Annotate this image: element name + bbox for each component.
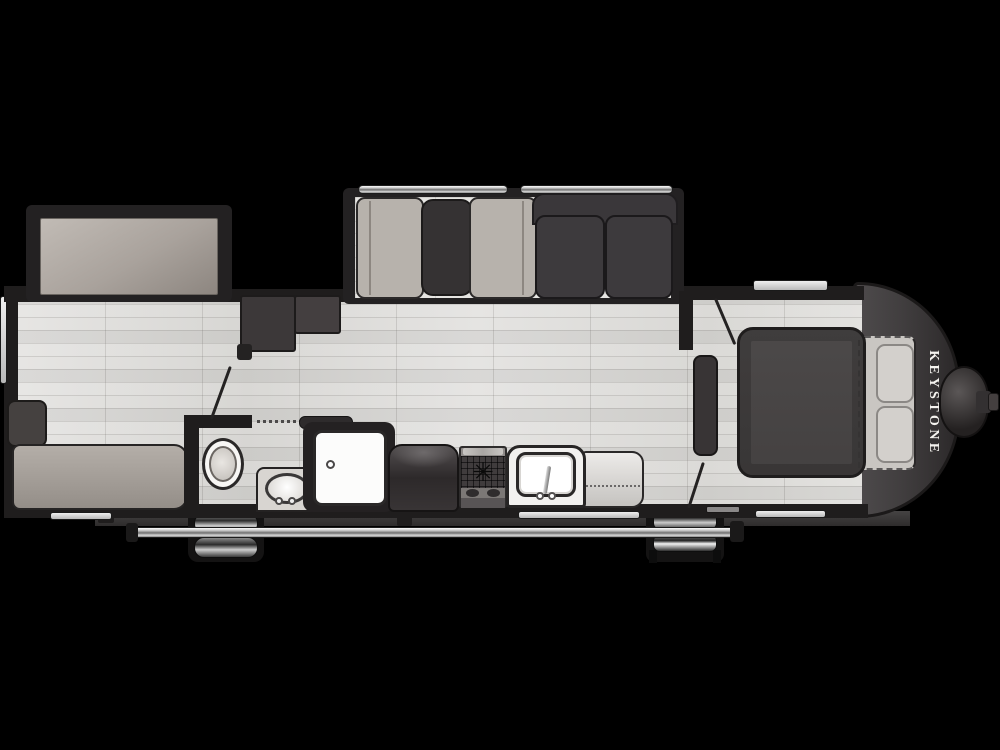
- awning-rail-endcap: [730, 521, 744, 542]
- step-leg: [649, 550, 657, 563]
- sofa-armrest: [7, 400, 47, 447]
- counter-flip-line: [586, 485, 640, 487]
- bathroom-wall-left: [184, 415, 199, 512]
- shower-pan: [313, 430, 387, 506]
- bench-back-divider: [522, 201, 524, 295]
- cabinet-foot: [237, 344, 252, 360]
- queen-bed-blanket: [737, 327, 866, 478]
- range-drawer: [461, 498, 505, 508]
- theater-sofa-cushion: [605, 215, 673, 299]
- faucet-knob: [536, 492, 544, 500]
- range-back-edge: [463, 448, 503, 455]
- theater-sofa-cushion: [535, 215, 605, 299]
- bathroom-wall-top: [184, 415, 252, 428]
- hitch-coupler: [988, 393, 999, 411]
- entertainment-cabinet-step: [294, 295, 341, 334]
- bed-pillow: [876, 344, 914, 403]
- step-leg: [713, 550, 721, 563]
- bed-pillow: [876, 406, 914, 463]
- faucet-knob: [548, 492, 556, 500]
- counter-extension: [582, 451, 644, 508]
- range-small-burner: [487, 489, 500, 497]
- range-grate: ✳: [461, 456, 505, 488]
- shower-drain: [326, 460, 335, 469]
- dinette-bench-right: [469, 197, 537, 299]
- slide-topper: [358, 185, 508, 194]
- kitchen-window: [518, 511, 640, 519]
- dinette-table: [421, 199, 473, 296]
- vanity-faucet: [275, 497, 283, 505]
- tire: [194, 537, 258, 558]
- pocket-door-track: [257, 420, 302, 423]
- toilet-bowl: [209, 446, 237, 482]
- rear-window: [0, 296, 7, 384]
- vanity-faucet: [288, 497, 296, 505]
- dinette-bench-left: [356, 197, 424, 299]
- rv-floorplan: ✳ KEYSTONE: [0, 0, 1000, 750]
- awning-rail-endcap: [126, 523, 138, 542]
- wardrobe: [693, 355, 718, 456]
- bench-back-divider: [369, 201, 371, 295]
- bed-sheet-fold-line: [858, 340, 860, 468]
- awning-rail: [132, 527, 736, 538]
- bedroom-top-window: [753, 280, 828, 291]
- bedroom-bottom-window: [755, 510, 826, 518]
- rear-bottom-window: [50, 512, 112, 520]
- entry-door: [706, 506, 740, 513]
- bedroom-wall-stub: [679, 291, 693, 350]
- burner-flame-icon: ✳: [472, 459, 494, 485]
- sofa: [12, 444, 188, 510]
- range-small-burner: [466, 489, 479, 497]
- brand-label: KEYSTONE: [924, 337, 942, 469]
- refrigerator: [388, 444, 459, 512]
- rear-slide-bunk: [40, 218, 218, 295]
